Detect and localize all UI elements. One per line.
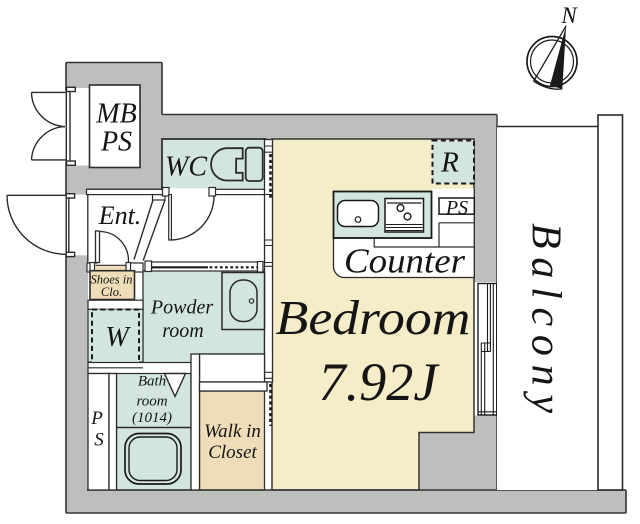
svg-text:R: R — [440, 147, 459, 179]
svg-text:W: W — [105, 322, 131, 353]
svg-text:WC: WC — [165, 152, 207, 183]
svg-text:P: P — [90, 408, 103, 429]
svg-text:Bath: Bath — [138, 374, 166, 390]
svg-text:Bedroom: Bedroom — [276, 290, 471, 345]
svg-text:PS: PS — [445, 197, 468, 219]
svg-text:room: room — [162, 320, 203, 342]
svg-text:(1014): (1014) — [132, 410, 172, 426]
svg-text:Ent.: Ent. — [98, 201, 142, 230]
svg-text:Walk in: Walk in — [204, 421, 261, 442]
svg-text:S: S — [94, 430, 104, 451]
svg-text:N: N — [560, 3, 578, 28]
svg-text:7.92J: 7.92J — [319, 352, 441, 412]
svg-text:Powder: Powder — [150, 297, 213, 319]
svg-text:Clo.: Clo. — [101, 285, 122, 299]
svg-text:Closet: Closet — [208, 442, 257, 463]
svg-text:Counter: Counter — [344, 242, 465, 281]
svg-text:room: room — [136, 394, 167, 410]
svg-text:PS: PS — [100, 127, 132, 158]
svg-text:MB: MB — [95, 99, 136, 130]
